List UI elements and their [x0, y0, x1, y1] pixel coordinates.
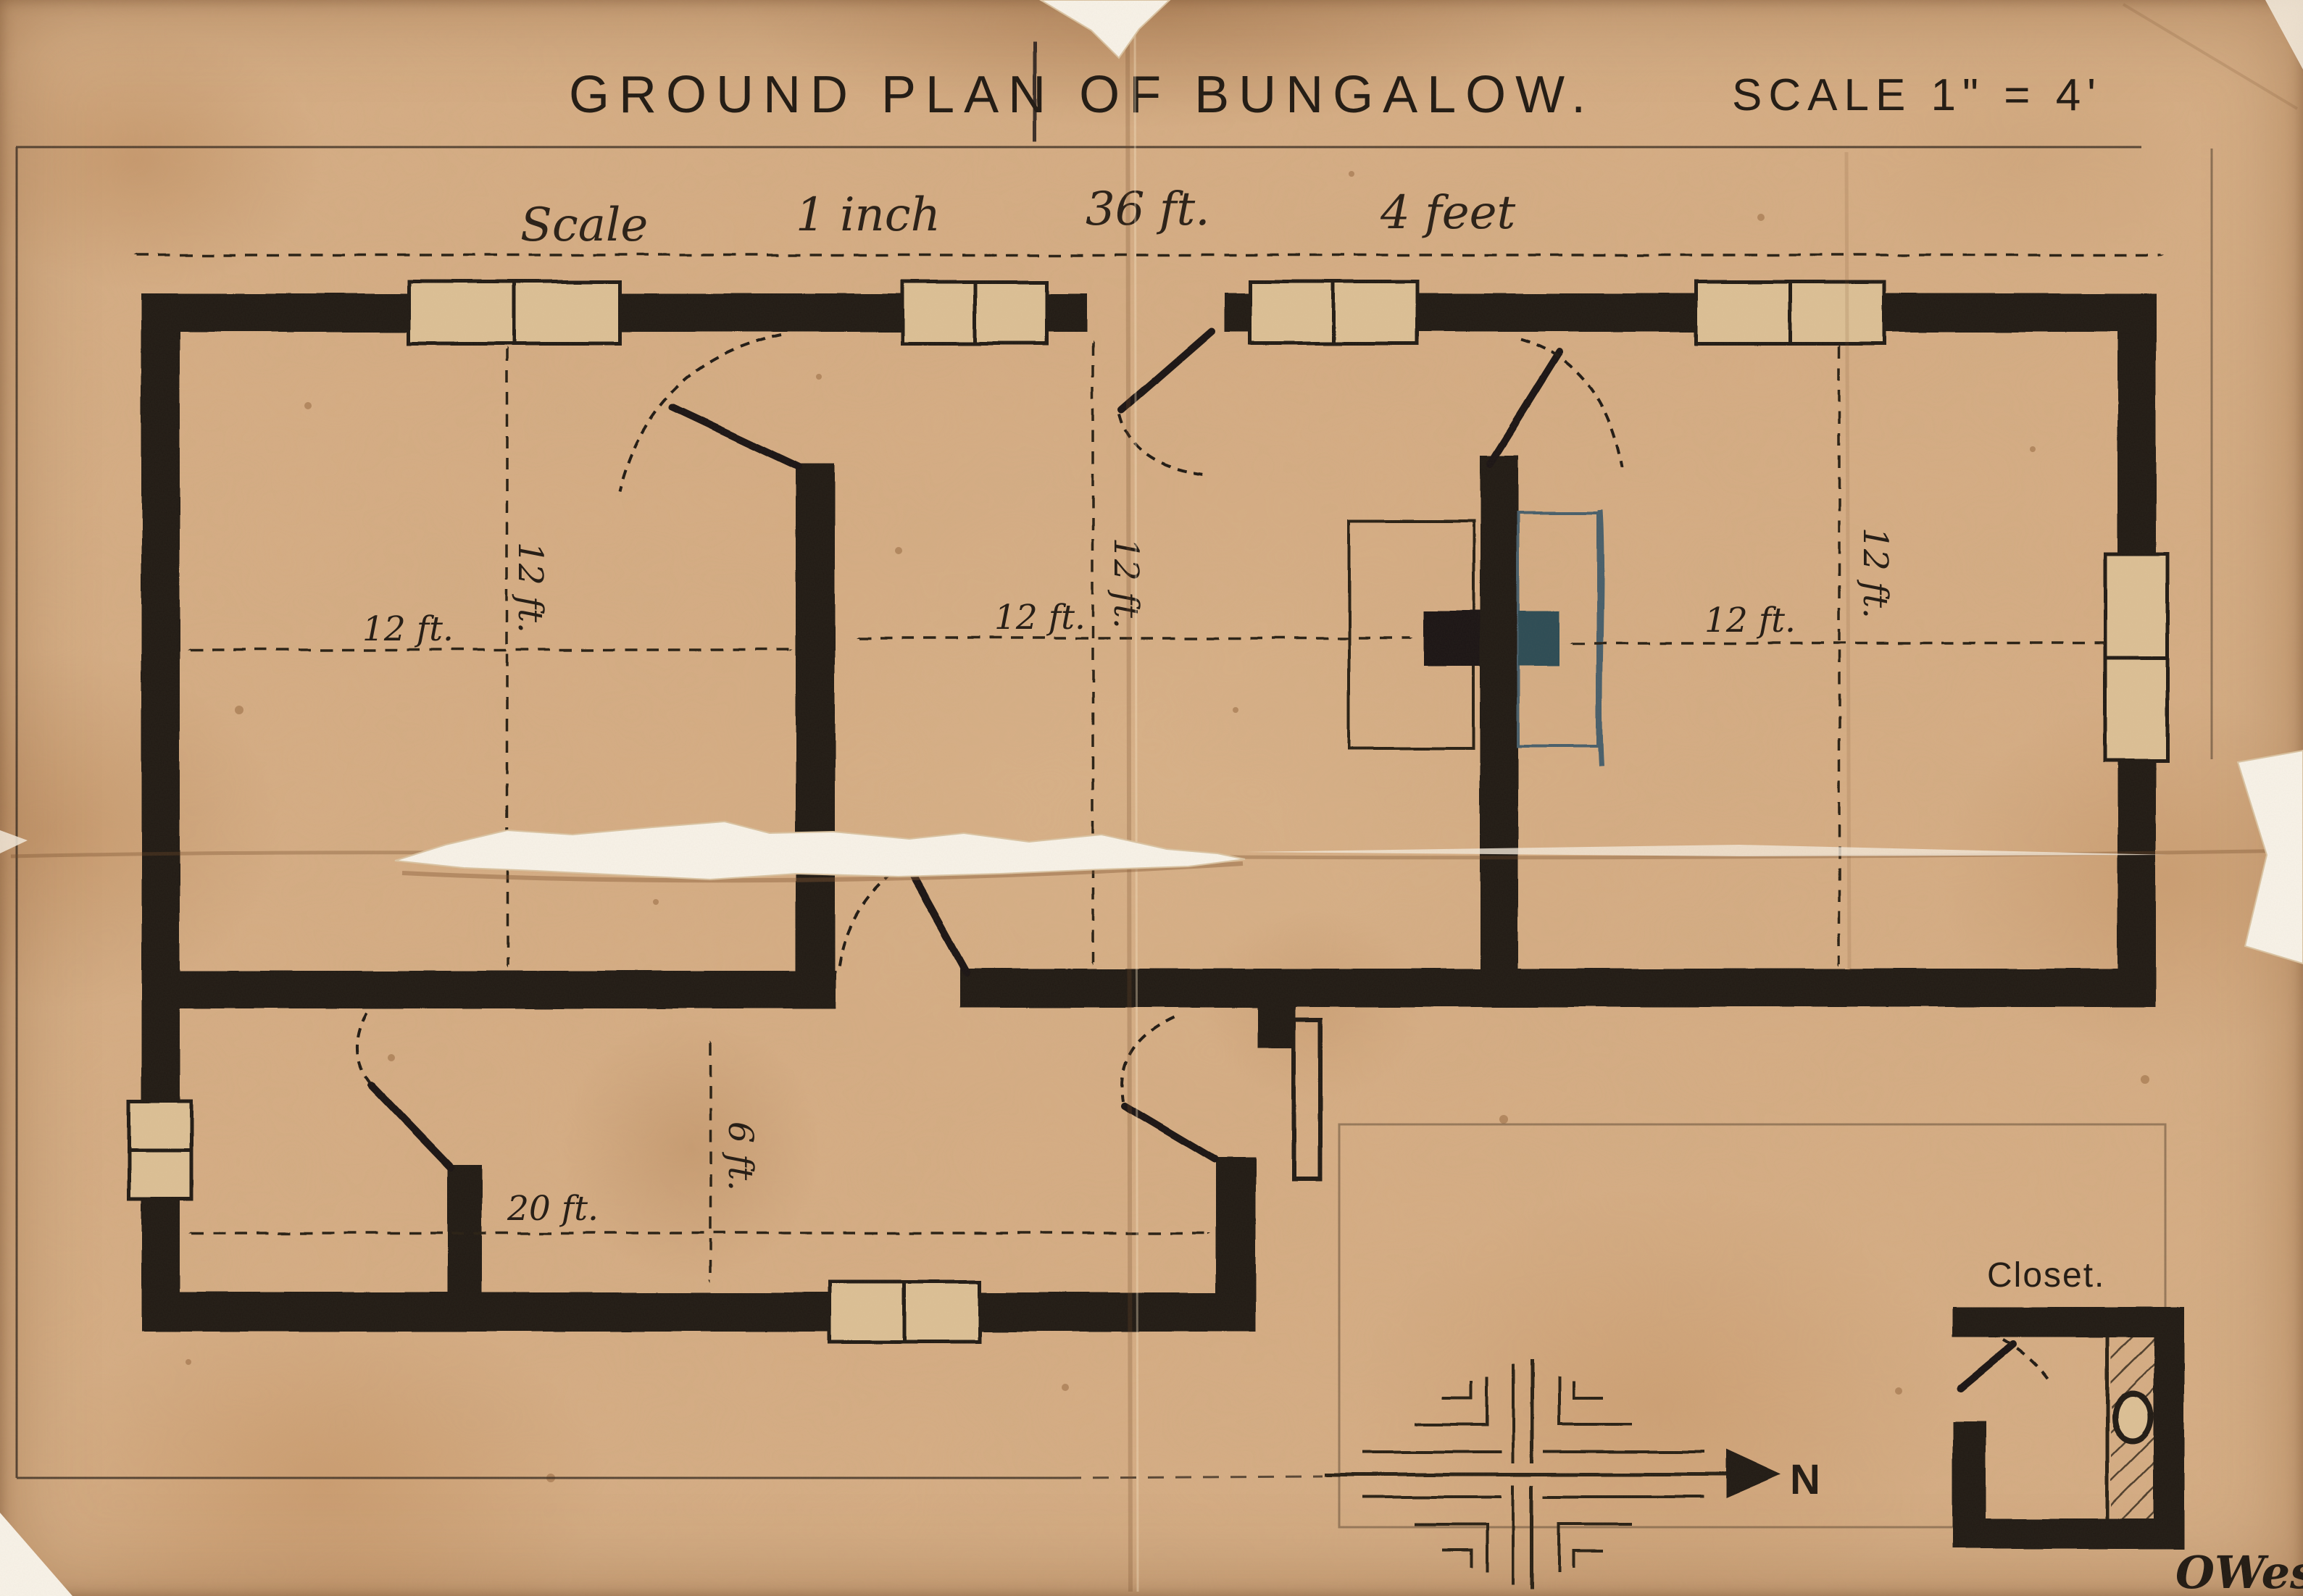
paper-grain	[0, 0, 2303, 1596]
plan-drawing: GROUND PLAN OF BUNGALOW. SCALE 1" = 4' S…	[0, 0, 2303, 1596]
scanned-ground-plan: GROUND PLAN OF BUNGALOW. SCALE 1" = 4' S…	[0, 0, 2303, 1596]
